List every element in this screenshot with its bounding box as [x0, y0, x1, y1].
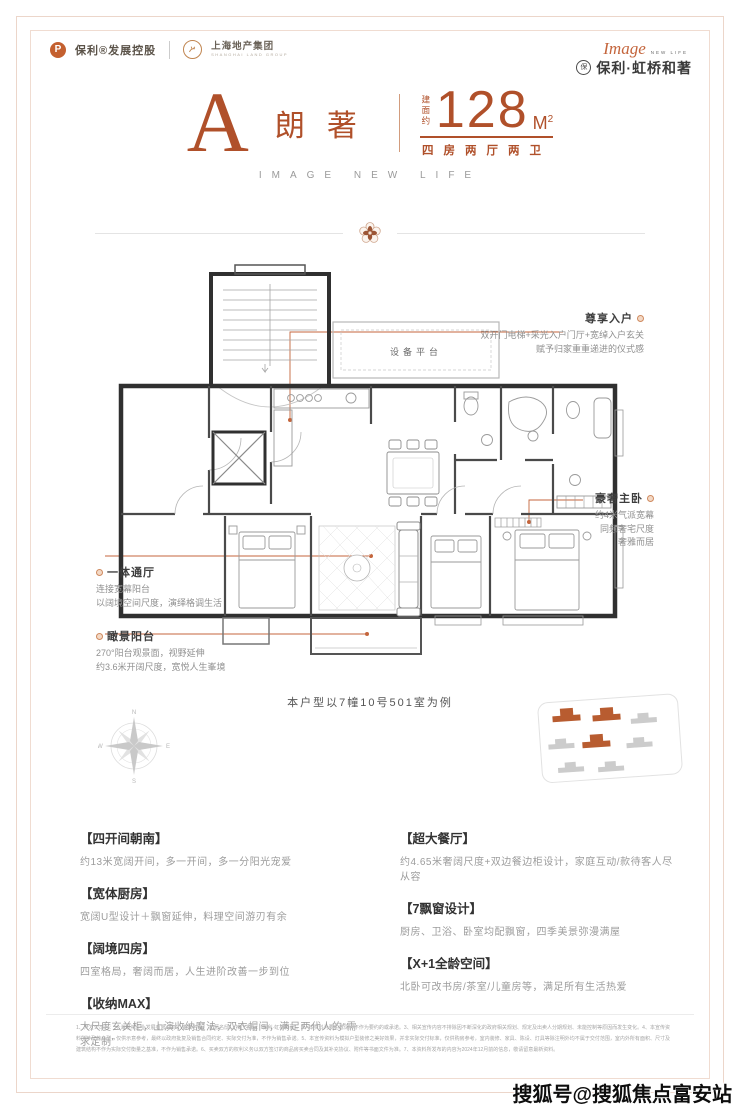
feature-body: 北卧可改书房/茶室/儿童房等，满足所有生活热爱: [400, 978, 682, 993]
area-block: 建面约 128 M2 四房两厅两卫: [420, 88, 553, 158]
logo-name-row: 保 保利·虹桥和著: [576, 60, 692, 75]
site-plan: [530, 686, 700, 790]
title-block: A 朗著 建面约 128 M2 四房两厅两卫: [0, 88, 740, 158]
feature-item: 【阔境四房】 四室格局，奢阔而居，人生进阶改善一步到位: [80, 938, 362, 978]
feature-title: 【收纳MAX】: [80, 993, 362, 1012]
brand2-label: 上海地产集团: [211, 42, 288, 52]
logo-script-row: Image NEW LIFE: [603, 40, 688, 57]
header: P 保利®发展控股 上海地产集团 SHANGHAI LAND GROUP Ima…: [50, 40, 692, 75]
annotation-master-title: 豪奢主卧: [544, 490, 654, 506]
annotation-balcony: 瞰景阳台 270°阳台观景面，视野延伸 约3.6米开阔尺度，宽悦人生峯境: [96, 628, 306, 674]
feature-item: 【超大餐厅】 约4.65米奢阔尺度+双边餐边柜设计，家庭互动/款待客人尽从容: [400, 828, 682, 883]
disclaimer-divider: [46, 1014, 694, 1015]
marker-icon: [647, 495, 654, 502]
feature-item: 【宽体厨房】 宽阔U型设计＋飘窗延伸，料理空间游刃有余: [80, 883, 362, 923]
annotation-hall-body: 连接宽幕阳台 以阔境空间尺度，演绎格调生活: [96, 583, 296, 610]
divider-line-right: [397, 233, 645, 234]
poster-page: P 保利®发展控股 上海地产集团 SHANGHAI LAND GROUP Ima…: [0, 0, 740, 1109]
watermark: 搜狐号@搜狐焦点富安站: [512, 1078, 732, 1107]
compass-icon: N S E W: [98, 708, 170, 784]
annotation-hall: 一体通厅 连接宽幕阳台 以阔境空间尺度，演绎格调生活: [96, 564, 296, 610]
feature-body: 厨房、卫浴、卧室均配飘窗，四季美景弥漫满屋: [400, 923, 682, 938]
annotation-entry-title: 尊享入户: [466, 310, 644, 326]
marker-icon: [96, 633, 103, 640]
brand2-sublabel: SHANGHAI LAND GROUP: [211, 53, 288, 57]
brand-separator: [169, 41, 170, 59]
logo-subtext: NEW LIFE: [651, 51, 688, 58]
brand-left: P 保利®发展控股 上海地产集团 SHANGHAI LAND GROUP: [50, 40, 288, 59]
logo-script-text: Image: [603, 40, 645, 57]
annotation-master-body: 约4米气派宽幕 同频奢宅尺度 奢雅而居: [544, 509, 654, 550]
feature-item: 【四开间朝南】 约13米宽阔开间，多一开间，多一分阳光宠爱: [80, 828, 362, 868]
divider-line-left: [95, 233, 343, 234]
feature-body: 四室格局，奢阔而居，人生进阶改善一步到位: [80, 963, 362, 978]
area-value: 128: [436, 88, 529, 132]
platform-label: 设备平台: [390, 346, 442, 357]
compass-w: W: [98, 744, 103, 750]
feature-title: 【7飘窗设计】: [400, 898, 682, 917]
feature-title: 【宽体厨房】: [80, 883, 362, 902]
flower-emblem-icon: [359, 222, 381, 244]
area-prefix: 建面约: [420, 95, 432, 133]
poly-logo-icon: P: [50, 42, 66, 58]
feature-body: 约13米宽阔开间，多一开间，多一分阳光宠爱: [80, 853, 362, 868]
feature-body: 约4.65米奢阔尺度+双边餐边柜设计，家庭互动/款待客人尽从容: [400, 853, 682, 883]
emblem-divider: [95, 222, 645, 244]
feature-title: 【超大餐厅】: [400, 828, 682, 847]
area-unit: M2: [533, 114, 554, 132]
floor-plan-section: 设备平台: [0, 262, 740, 707]
compass-s: S: [132, 779, 136, 784]
annotation-master: 豪奢主卧 约4米气派宽幕 同频奢宅尺度 奢雅而居: [544, 490, 654, 550]
feature-item: 【7飘窗设计】 厨房、卫浴、卧室均配飘窗，四季美景弥漫满屋: [400, 898, 682, 938]
shanghai-land-logo-icon: [183, 40, 202, 59]
feature-item: 【X+1全龄空间】 北卧可改书房/茶室/儿童房等，满足所有生活热爱: [400, 953, 682, 993]
tagline: IMAGE NEW LIFE: [0, 170, 740, 181]
brand1-label: 保利®发展控股: [75, 42, 156, 58]
marker-icon: [637, 315, 644, 322]
seal-icon: 保: [576, 60, 591, 75]
annotation-entry-body: 双开门电梯+采光入户门厅+宽绰入户玄关 赋予归家重重递进的仪式感: [466, 329, 644, 356]
area-underline: [420, 136, 553, 138]
compass-n: N: [132, 710, 136, 716]
title-divider: [399, 94, 400, 152]
disclaimer-text: 1、开发公司为：“上海琨礼企业发展有限公司”，备案名为：“和著名邸”，推广名为：…: [76, 1023, 670, 1056]
marker-icon: [96, 569, 103, 576]
annotation-entry: 尊享入户 双开门电梯+采光入户门厅+宽绰入户玄关 赋予归家重重递进的仪式感: [466, 310, 644, 356]
feature-title: 【阔境四房】: [80, 938, 362, 957]
project-name: 保利·虹桥和著: [596, 61, 692, 75]
annotation-balcony-body: 270°阳台观景面，视野延伸 约3.6米开阔尺度，宽悦人生峯境: [96, 647, 306, 674]
feature-body: 宽阔U型设计＋飘窗延伸，料理空间游刃有余: [80, 908, 362, 923]
feature-title: 【X+1全龄空间】: [400, 953, 682, 972]
annotation-hall-title: 一体通厅: [96, 564, 296, 580]
project-logo: Image NEW LIFE 保 保利·虹桥和著: [576, 40, 692, 75]
unit-letter: A: [187, 88, 249, 157]
annotation-balcony-title: 瞰景阳台: [96, 628, 306, 644]
brand2-block: 上海地产集团 SHANGHAI LAND GROUP: [211, 42, 288, 57]
feature-title: 【四开间朝南】: [80, 828, 362, 847]
layout-text: 四房两厅两卫: [420, 142, 553, 158]
compass-e: E: [166, 744, 170, 750]
unit-name: 朗著: [275, 101, 379, 145]
